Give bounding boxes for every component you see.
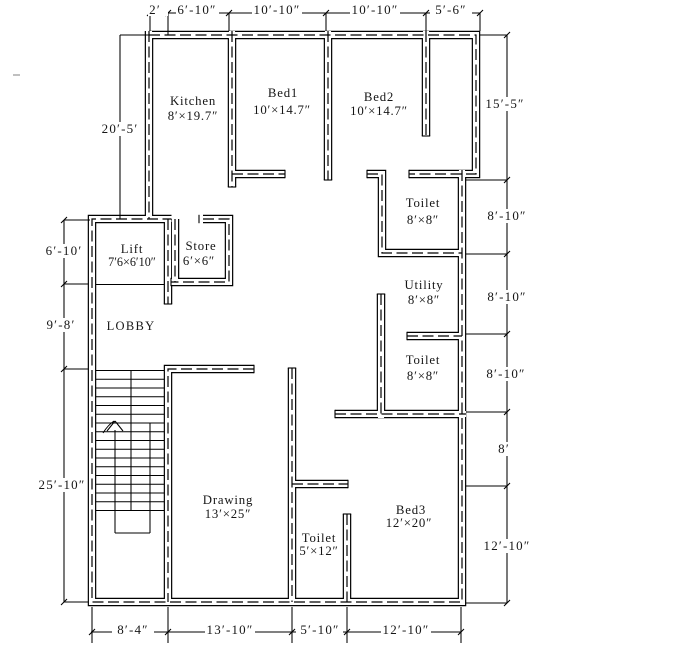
svg-text:10′×14.7″: 10′×14.7″	[253, 103, 311, 117]
svg-text:6′-10′: 6′-10′	[46, 243, 83, 258]
svg-text:13′-10″: 13′-10″	[207, 622, 254, 637]
svg-text:Bed1: Bed1	[268, 86, 298, 100]
svg-text:7′6×6′10″: 7′6×6′10″	[108, 255, 156, 269]
svg-text:Bed3: Bed3	[396, 503, 426, 517]
svg-text:5′-10″: 5′-10″	[300, 622, 339, 637]
svg-text:Store: Store	[185, 239, 216, 253]
svg-text:6′-10″: 6′-10″	[177, 2, 216, 17]
svg-text:9′-8′: 9′-8′	[46, 317, 75, 332]
svg-text:5′-6″: 5′-6″	[435, 2, 467, 17]
svg-text:5′×12″: 5′×12″	[299, 544, 338, 558]
svg-text:Lift: Lift	[121, 242, 143, 256]
svg-text:8′×19.7″: 8′×19.7″	[168, 109, 219, 123]
svg-text:12′-10″: 12′-10″	[484, 538, 531, 553]
svg-text:Utility: Utility	[404, 278, 443, 292]
svg-text:Toilet: Toilet	[406, 196, 440, 210]
svg-text:2′: 2′	[149, 2, 161, 17]
svg-text:8′×8″: 8′×8″	[408, 293, 440, 307]
svg-text:25′-10″: 25′-10″	[39, 477, 86, 492]
svg-text:Toilet: Toilet	[302, 531, 336, 545]
svg-text:Bed2: Bed2	[364, 90, 394, 104]
svg-text:10′-10″: 10′-10″	[352, 2, 399, 17]
svg-text:12′×20″: 12′×20″	[386, 516, 433, 530]
svg-text:6′×6″: 6′×6″	[183, 254, 215, 268]
svg-text:10′×14.7″: 10′×14.7″	[350, 104, 408, 118]
svg-text:10′-10″: 10′-10″	[254, 2, 301, 17]
svg-text:8′-10″: 8′-10″	[486, 366, 525, 381]
svg-text:Drawing: Drawing	[203, 493, 253, 507]
svg-text:8′×8″: 8′×8″	[407, 369, 439, 383]
svg-text:8′: 8′	[498, 441, 510, 456]
svg-text:12′-10″: 12′-10″	[383, 622, 430, 637]
svg-text:13′×25″: 13′×25″	[205, 507, 252, 521]
svg-text:8′-10″: 8′-10″	[487, 289, 526, 304]
svg-text:Kitchen: Kitchen	[170, 94, 216, 108]
svg-text:LOBBY: LOBBY	[107, 319, 156, 333]
svg-text:15′-5″: 15′-5″	[485, 96, 524, 111]
svg-text:20′-5′: 20′-5′	[102, 121, 139, 136]
svg-text:Toilet: Toilet	[406, 353, 440, 367]
svg-text:8′×8″: 8′×8″	[407, 213, 439, 227]
svg-text:8′-4″: 8′-4″	[117, 622, 149, 637]
svg-text:8′-10″: 8′-10″	[487, 208, 526, 223]
